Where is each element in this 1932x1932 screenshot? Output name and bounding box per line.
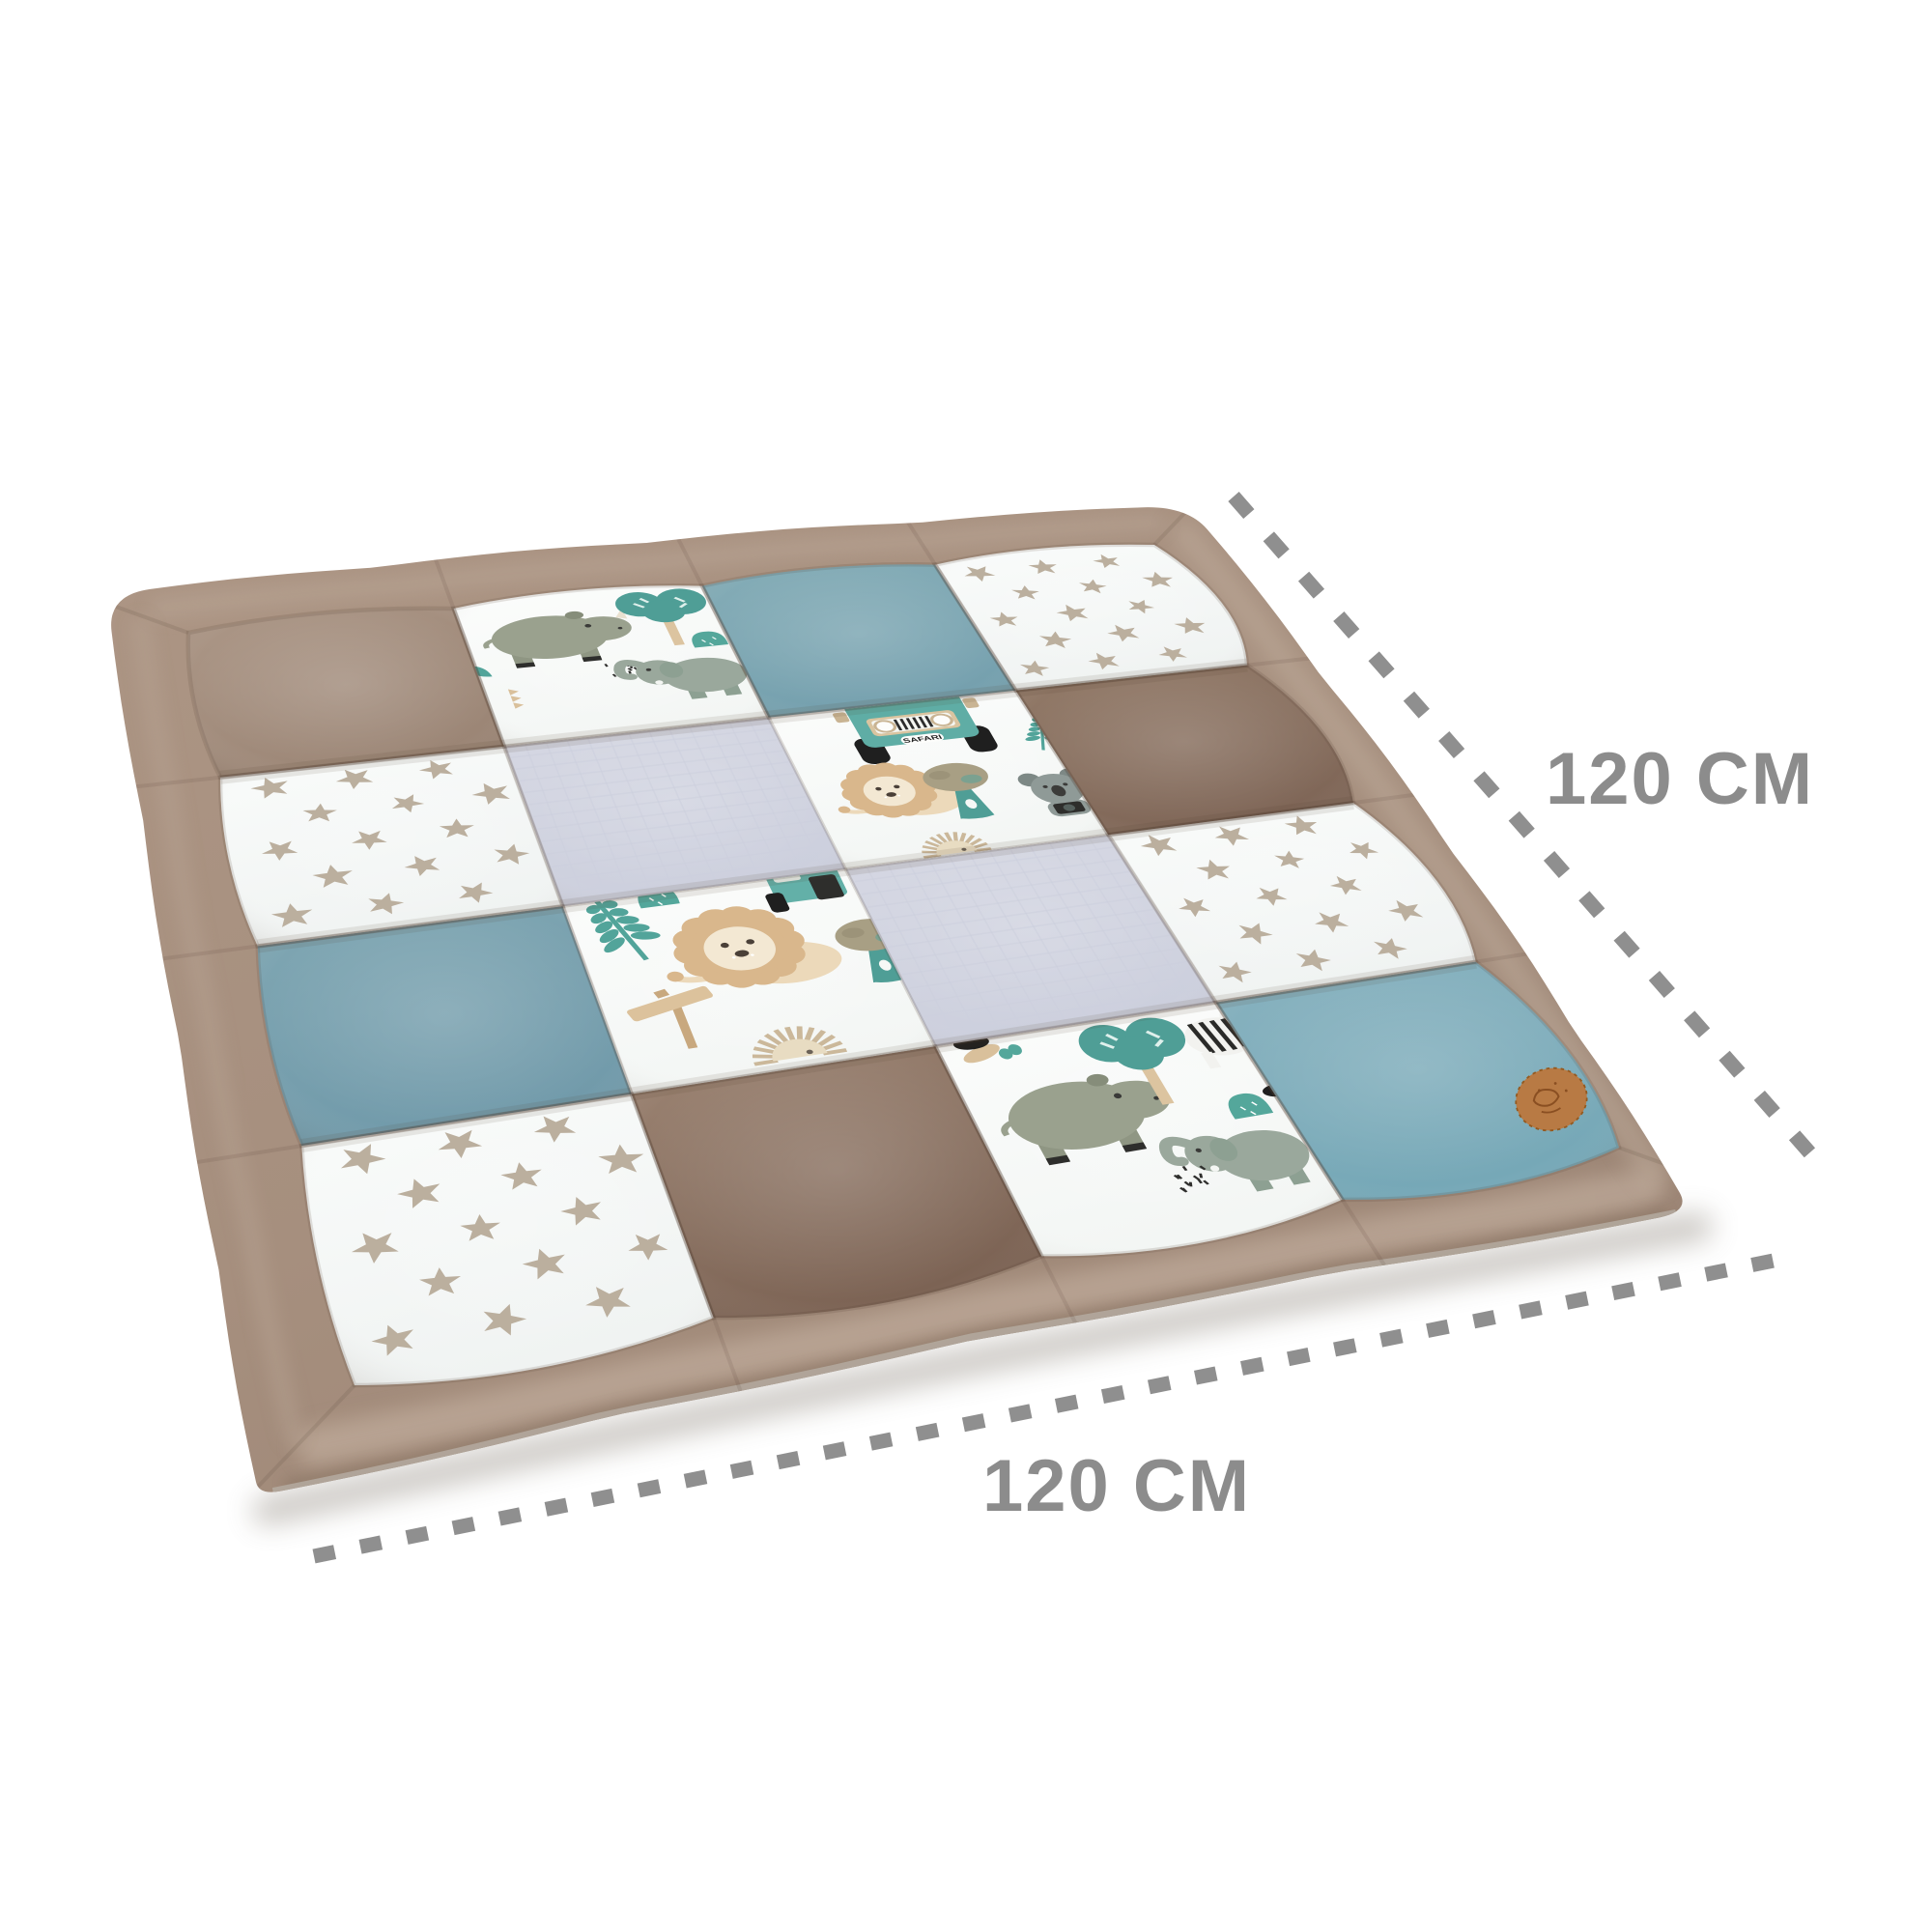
svg-text:120 CM: 120 CM — [982, 1445, 1251, 1527]
svg-text:120 CM: 120 CM — [1546, 738, 1814, 820]
